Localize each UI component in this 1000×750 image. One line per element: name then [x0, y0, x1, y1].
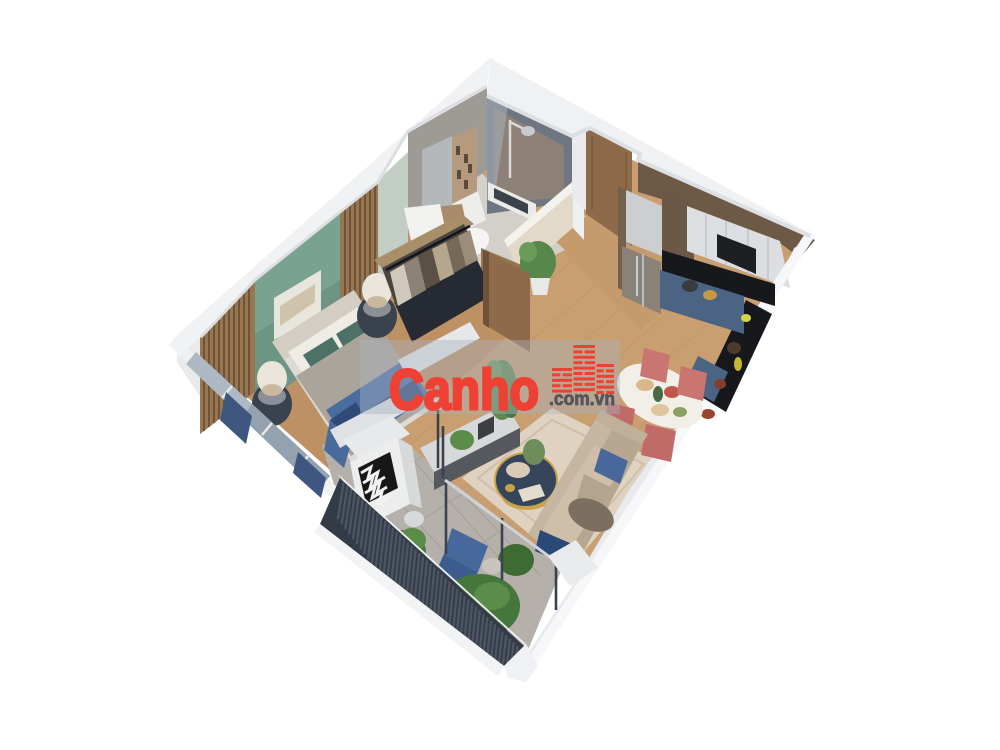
svg-text:.com.vn: .com.vn	[549, 389, 615, 410]
svg-text:Canho: Canho	[389, 358, 539, 422]
